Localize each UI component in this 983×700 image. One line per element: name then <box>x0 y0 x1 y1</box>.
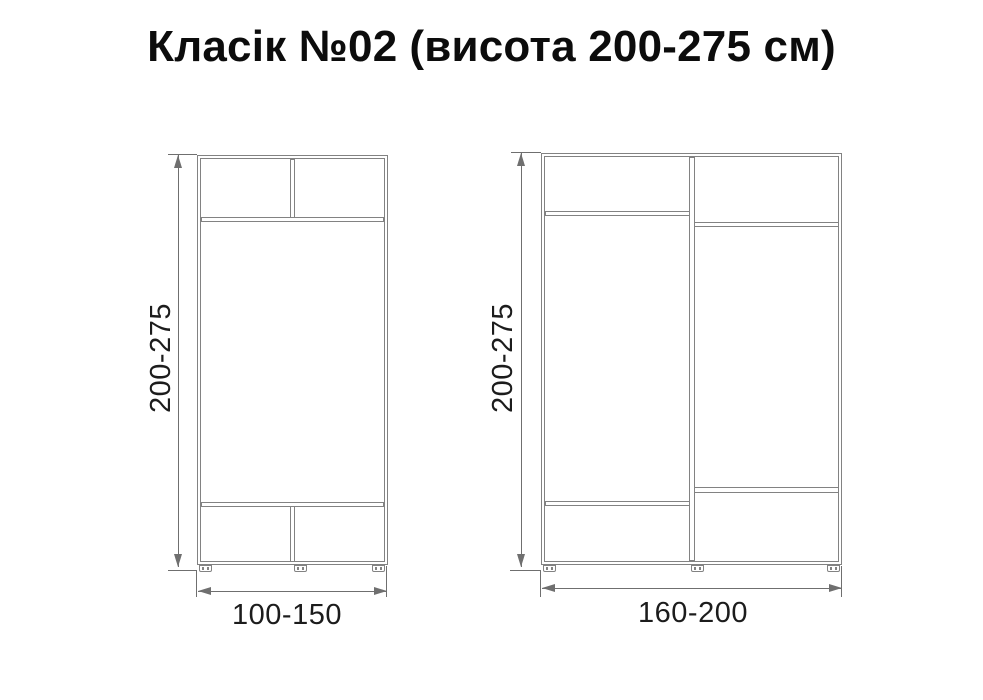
large-wardrobe-width-label: 160-200 <box>618 598 768 628</box>
large-wardrobe-left-top-shelf <box>545 211 690 216</box>
small-width-dim-arrow-right-icon <box>374 587 387 595</box>
small-wardrobe-width-label: 100-150 <box>212 600 362 630</box>
small-wardrobe-height-label: 200-275 <box>146 298 176 418</box>
large-wardrobe-right-bottom-shelf <box>694 487 839 493</box>
large-width-dim-ext-left <box>540 570 541 597</box>
large-width-dim-ext-right <box>841 566 842 597</box>
large-wardrobe-foot-center-icon <box>691 565 704 572</box>
small-width-dim-line <box>198 591 387 592</box>
page-title-model: Класік №02 <box>147 22 397 71</box>
large-wardrobe-left-bottom-shelf <box>545 501 690 506</box>
large-width-dim-arrow-right-icon <box>829 584 842 592</box>
small-wardrobe-foot-center-icon <box>294 565 307 572</box>
small-wardrobe-foot-left-icon <box>199 565 212 572</box>
large-height-dim-arrow-bottom-icon <box>517 554 525 567</box>
small-height-dim-line <box>178 155 179 567</box>
small-height-dim-arrow-bottom-icon <box>174 554 182 567</box>
small-width-dim-ext-left <box>196 570 197 597</box>
large-height-dim-bottom-tick <box>510 570 540 571</box>
large-wardrobe-foot-right-icon <box>827 565 840 572</box>
large-width-dim-arrow-left-icon <box>542 584 555 592</box>
large-width-dim-line <box>542 588 842 589</box>
large-wardrobe-foot-left-icon <box>543 565 556 572</box>
large-wardrobe-right-top-shelf <box>694 222 839 227</box>
large-height-dim-top-tick <box>511 152 541 153</box>
small-wardrobe-top-divider <box>290 159 295 218</box>
wardrobe-dimension-diagram: Класік №02(висота 200-275 см) 200-275 10… <box>0 0 983 700</box>
small-wardrobe-bottom-divider <box>290 506 295 562</box>
small-width-dim-arrow-left-icon <box>198 587 211 595</box>
page-title: Класік №02(висота 200-275 см) <box>0 22 983 72</box>
small-height-dim-arrow-top-icon <box>174 155 182 168</box>
small-height-dim-bottom-tick <box>168 570 197 571</box>
small-wardrobe-foot-right-icon <box>372 565 385 572</box>
small-height-dim-top-tick <box>168 154 197 155</box>
large-height-dim-arrow-top-icon <box>517 153 525 166</box>
large-height-dim-line <box>521 153 522 567</box>
large-wardrobe-height-label: 200-275 <box>488 298 518 418</box>
page-title-height-range: (висота 200-275 см) <box>409 22 835 71</box>
